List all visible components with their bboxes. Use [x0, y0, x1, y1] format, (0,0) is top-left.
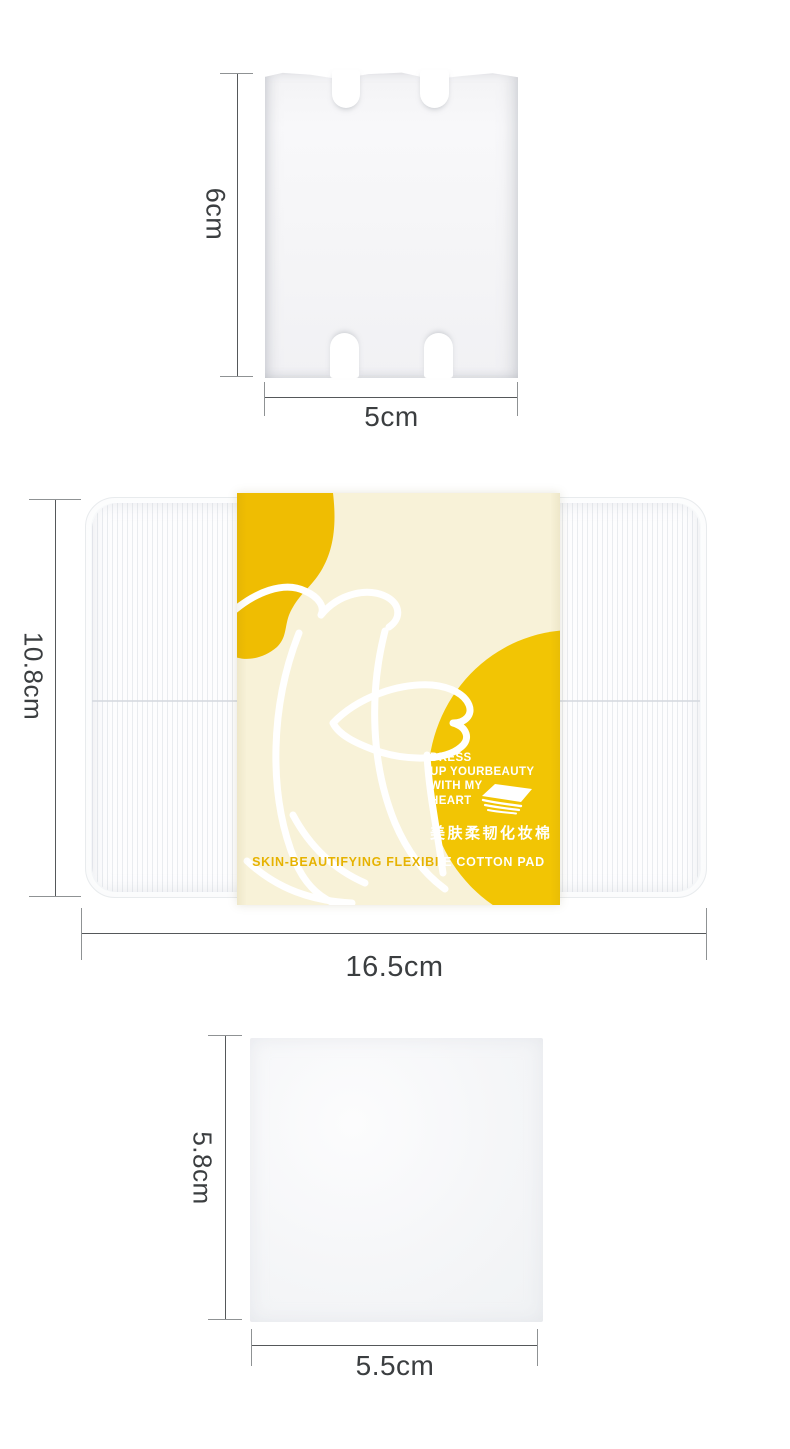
dimension-cap [706, 908, 707, 960]
dimension-line [82, 933, 707, 934]
dimension-cap [220, 376, 253, 377]
width-value: 16.5cm [282, 951, 507, 984]
dimension-cap [81, 908, 82, 960]
pad-tab [424, 333, 453, 378]
package-label: DRESS UP YOURBEAUTY WITH MY HEART 美肤柔韧化妆… [237, 493, 560, 905]
cotton-pad-photo [265, 72, 518, 378]
product-dimensions-image: 6cm 5cm [0, 0, 790, 1449]
dimension-line [55, 500, 56, 897]
product-name-en: SKIN-BEAUTIFYING FLEXIBLE COTTON PAD [237, 855, 560, 869]
height-value: 6cm [200, 188, 231, 241]
pad-tab [330, 333, 359, 378]
dimension-line [225, 1036, 226, 1320]
dimension-line [265, 397, 518, 398]
dimension-line [237, 74, 238, 377]
dimension-cap [29, 896, 81, 897]
dimension-cap [208, 1319, 242, 1320]
pad-tab [332, 70, 360, 108]
square-cotton-pad-photo [250, 1038, 543, 1322]
yellow-blob-shape [237, 493, 335, 659]
cotton-pad-stack-icon [480, 783, 544, 815]
height-value: 10.8cm [18, 632, 49, 720]
width-value: 5cm [265, 401, 518, 433]
product-name-cn: 美肤柔韧化妆棉 [430, 822, 560, 842]
height-value: 5.8cm [187, 1131, 218, 1204]
slogan-line: DRESS [430, 751, 555, 765]
pad-tab [420, 70, 449, 108]
width-value: 5.5cm [252, 1350, 538, 1382]
slogan-line: UP YOURBEAUTY [430, 765, 555, 779]
dimension-line [252, 1345, 538, 1346]
label-artwork [237, 493, 560, 905]
